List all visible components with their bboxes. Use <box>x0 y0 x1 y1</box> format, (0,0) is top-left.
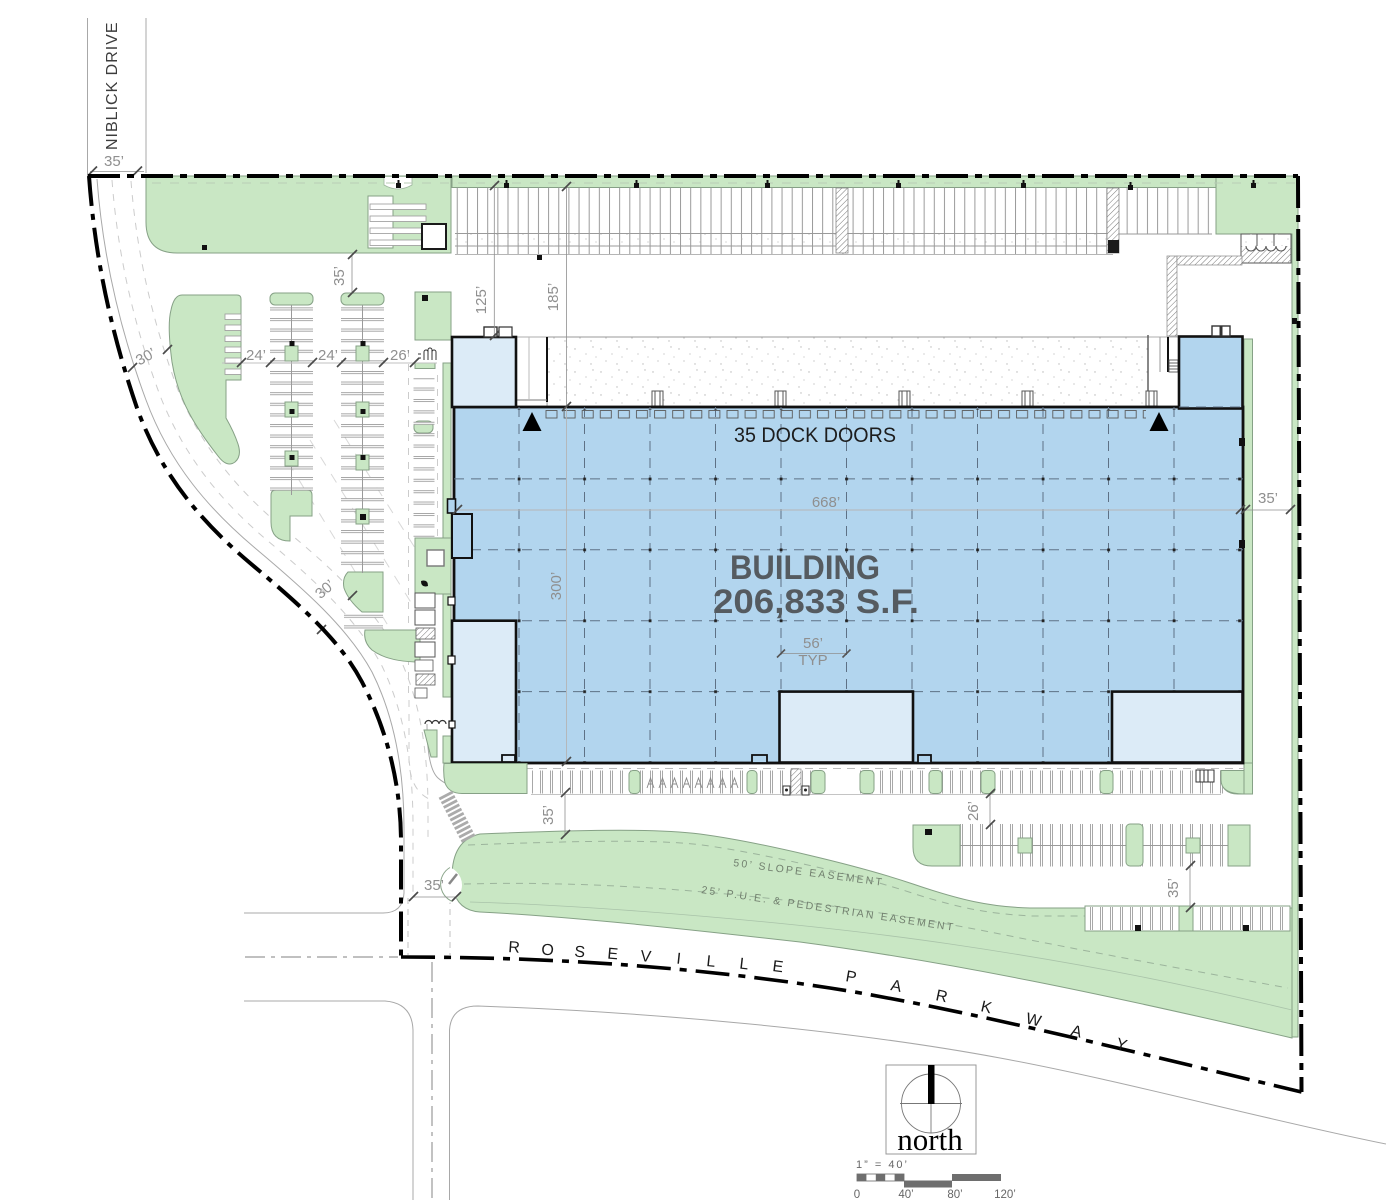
svg-text:NIBLICK DRIVE: NIBLICK DRIVE <box>104 21 121 150</box>
svg-text:185’: 185’ <box>545 283 562 311</box>
svg-text:26’: 26’ <box>390 347 410 364</box>
svg-text:E: E <box>607 946 619 964</box>
svg-text:V: V <box>640 948 653 966</box>
svg-text:80’: 80’ <box>947 1189 962 1200</box>
svg-text:24’: 24’ <box>318 347 338 364</box>
svg-text:40’: 40’ <box>898 1189 913 1200</box>
svg-text:E: E <box>772 958 785 976</box>
svg-text:120’: 120’ <box>994 1189 1016 1200</box>
svg-text:24’: 24’ <box>246 347 266 364</box>
svg-text:S: S <box>574 944 586 962</box>
svg-text:BUILDING: BUILDING <box>730 549 880 587</box>
svg-text:125’: 125’ <box>473 286 490 314</box>
svg-text:O: O <box>541 942 555 960</box>
svg-text:35 DOCK DOORS: 35 DOCK DOORS <box>734 424 896 447</box>
svg-text:35’: 35’ <box>1258 490 1278 507</box>
svg-text:35’: 35’ <box>540 805 557 825</box>
svg-text:300’: 300’ <box>548 572 565 600</box>
svg-text:668’: 668’ <box>812 494 840 511</box>
svg-text:35’: 35’ <box>331 266 348 286</box>
svg-text:56’: 56’ <box>803 635 823 652</box>
svg-text:35’: 35’ <box>104 153 124 170</box>
svg-text:206,833 S.F.: 206,833 S.F. <box>713 583 919 621</box>
svg-text:26’: 26’ <box>965 801 982 821</box>
svg-text:35’: 35’ <box>424 877 444 894</box>
svg-text:0: 0 <box>854 1189 860 1200</box>
svg-text:north: north <box>897 1122 963 1157</box>
svg-text:L: L <box>706 953 717 971</box>
svg-text:35’: 35’ <box>1165 878 1182 898</box>
svg-text:R: R <box>508 939 521 957</box>
svg-text:1” = 40’: 1” = 40’ <box>856 1159 909 1171</box>
svg-text:TYP: TYP <box>798 652 827 669</box>
